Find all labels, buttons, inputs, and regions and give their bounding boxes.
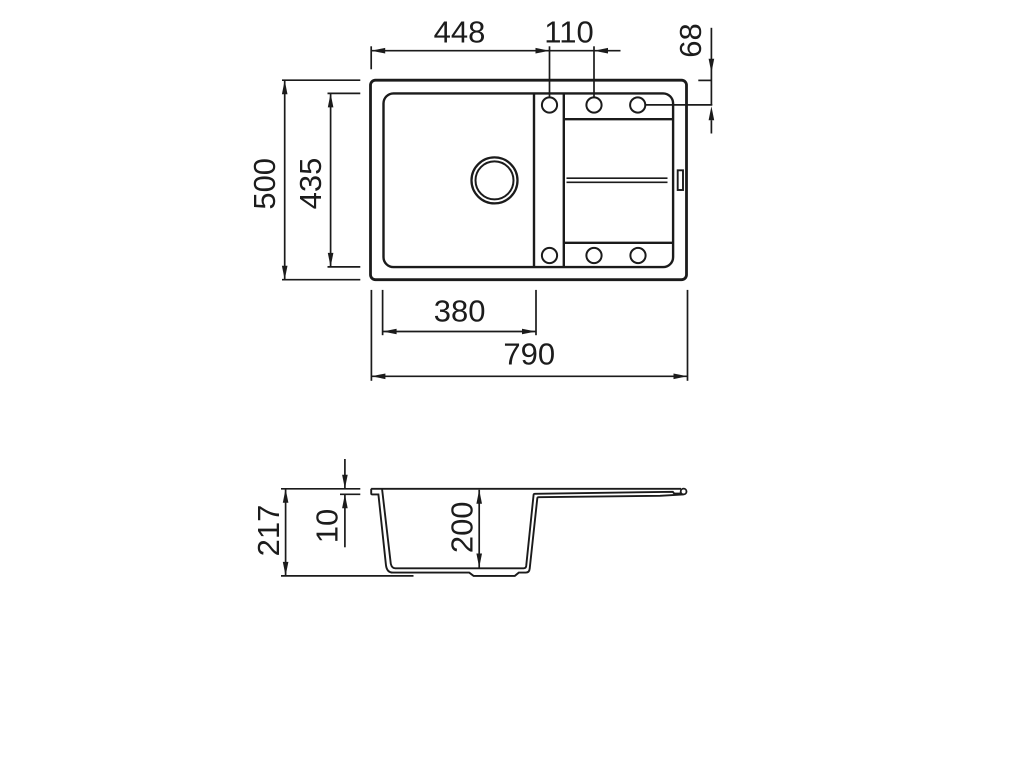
svg-text:435: 435 xyxy=(293,158,328,210)
svg-text:380: 380 xyxy=(434,294,486,329)
svg-text:110: 110 xyxy=(544,15,593,50)
svg-text:10: 10 xyxy=(310,509,345,543)
svg-text:68: 68 xyxy=(673,23,708,57)
svg-text:200: 200 xyxy=(445,501,480,553)
svg-text:448: 448 xyxy=(434,15,486,50)
svg-text:790: 790 xyxy=(503,337,555,372)
svg-text:217: 217 xyxy=(251,505,286,557)
svg-text:500: 500 xyxy=(247,158,282,210)
